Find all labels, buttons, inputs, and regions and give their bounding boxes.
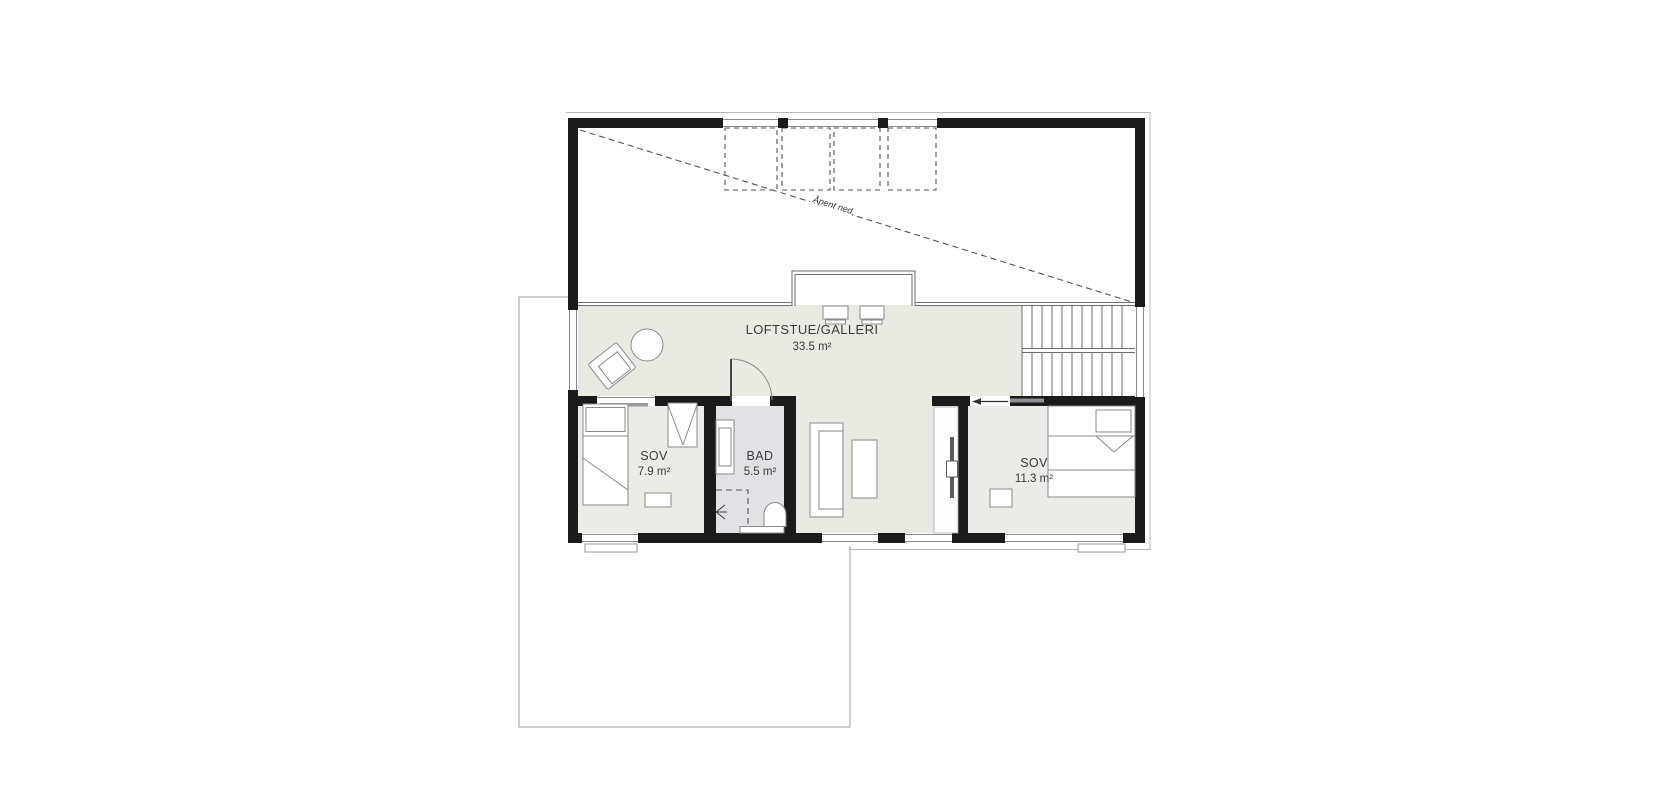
gallery-railing xyxy=(578,271,1135,306)
coffee-table-icon xyxy=(852,440,877,498)
open-below-diagonal xyxy=(580,130,1132,302)
open-below-label: Åpent ned xyxy=(811,194,855,216)
room-bad-area: 5.5 m² xyxy=(744,466,777,478)
round-table-icon xyxy=(631,329,663,361)
window-left xyxy=(569,310,578,390)
dresser-icon xyxy=(645,493,671,507)
room-sov2-name: SOV xyxy=(1020,456,1048,470)
wardrobe-icon xyxy=(668,403,697,447)
room-loftstue-area: 33.5 m² xyxy=(793,341,832,353)
room-loftstue-name: LOFTSTUE/GALLERI xyxy=(746,322,879,337)
skylight-icon xyxy=(725,128,777,190)
window-top xyxy=(723,119,937,128)
skylight-icon xyxy=(782,128,830,190)
skylight-icon xyxy=(888,128,936,190)
window-sill xyxy=(585,544,637,552)
skylight-windows xyxy=(725,128,936,190)
window-sill xyxy=(1078,544,1125,552)
slide-direction-arrow-icon xyxy=(972,398,981,405)
sofa-icon xyxy=(810,423,843,517)
railing-bumpout xyxy=(792,271,915,306)
double-bed-icon xyxy=(1048,406,1135,497)
bed-icon xyxy=(583,404,628,505)
window-right xyxy=(1136,307,1145,397)
room-sov1-area: 7.9 m² xyxy=(638,466,671,478)
skylight-icon xyxy=(834,128,880,190)
stair-area-floor xyxy=(1022,305,1135,396)
nightstand-icon xyxy=(990,489,1012,507)
door-handle xyxy=(947,461,958,477)
room-sov2-area: 11.3 m² xyxy=(1015,473,1053,485)
floorplan-drawing: Åpent ned LOFTSTUE/GALLERI 33.5 m² SOV 7… xyxy=(0,0,1670,800)
room-sov1-name: SOV xyxy=(640,449,668,463)
room-bad-name: BAD xyxy=(747,449,774,463)
sink-icon xyxy=(716,420,734,474)
floorplan-page: Åpent ned LOFTSTUE/GALLERI 33.5 m² SOV 7… xyxy=(0,0,1670,800)
